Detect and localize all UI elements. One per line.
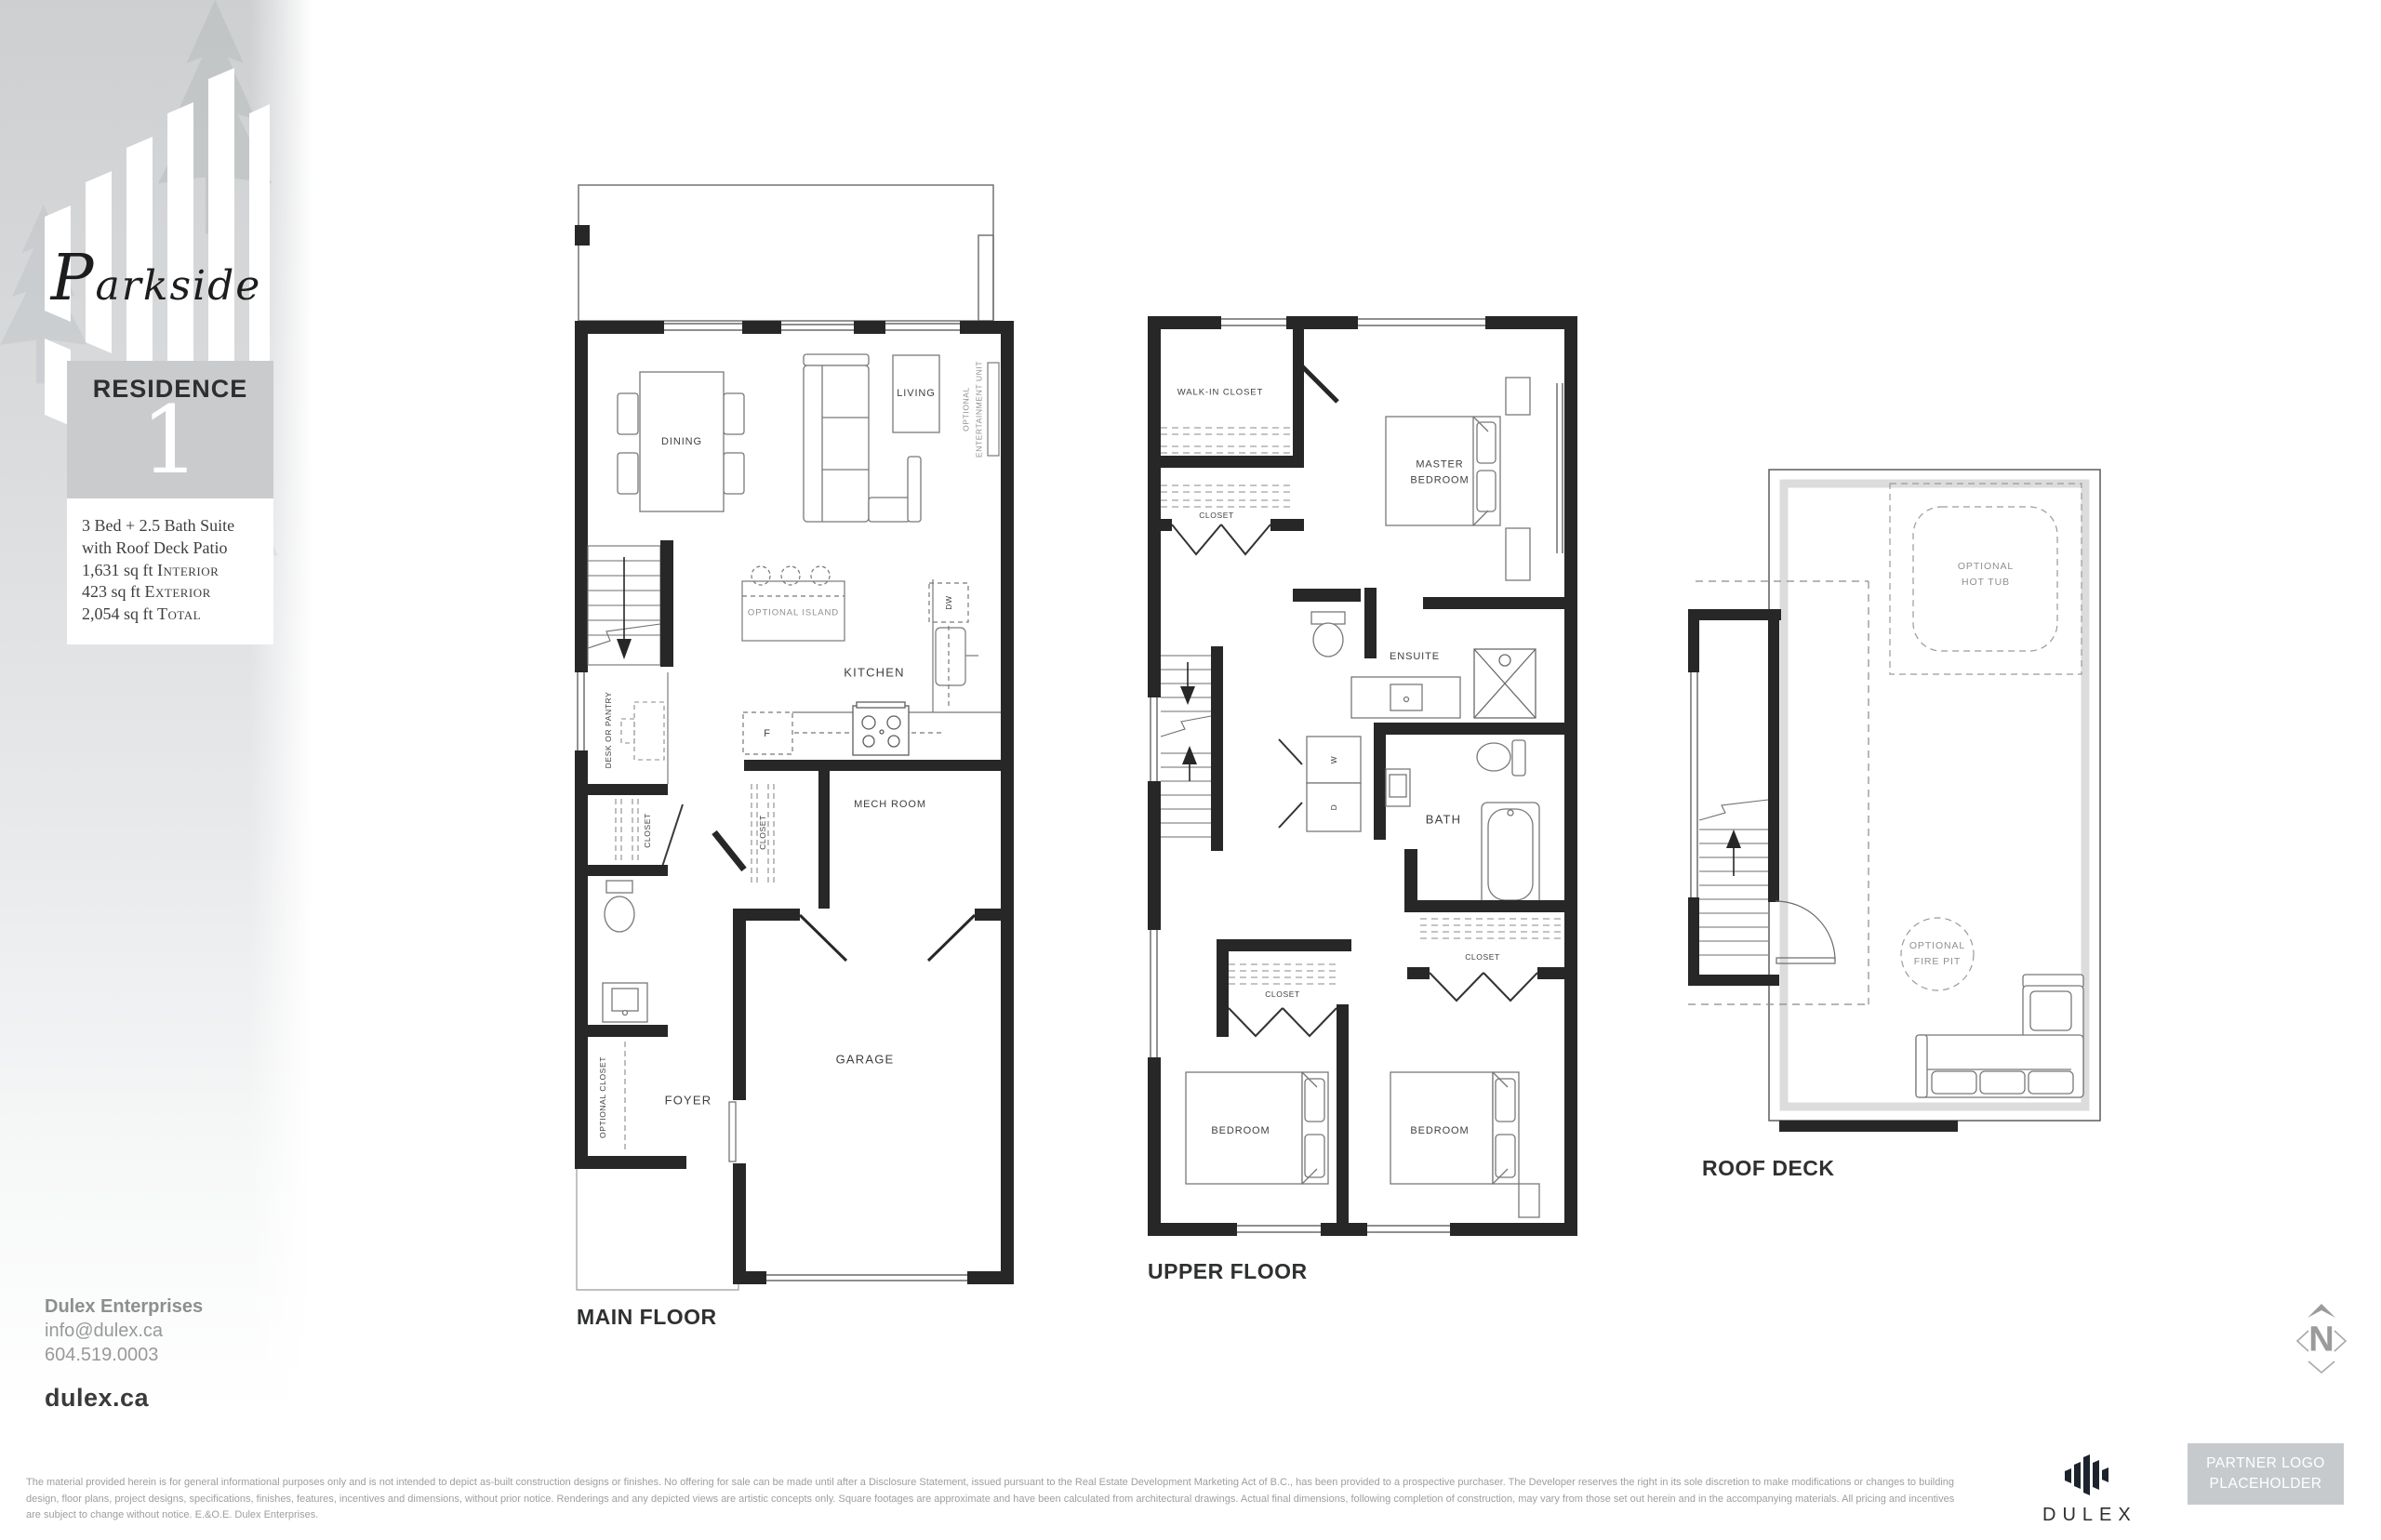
compass-north-label: N (2308, 1321, 2334, 1361)
room-label-bedroom-left: BEDROOM (1211, 1125, 1270, 1136)
label-closet-top: CLOSET (1199, 511, 1234, 520)
main-floor-drawing (575, 181, 1014, 1358)
main-floor-title: MAIN FLOOR (577, 1305, 717, 1330)
dulex-logo-mark (2063, 1447, 2115, 1503)
room-label-bath: BATH (1426, 813, 1462, 827)
label-optional-island: OPTIONAL ISLAND (748, 608, 839, 618)
label-closet-right: CLOSET (1465, 952, 1500, 962)
contact-block: Dulex Enterprises info@dulex.ca 604.519.… (45, 1294, 203, 1414)
label-optional-hot-tub: OPTIONALHOT TUB (1958, 559, 2014, 591)
label-optional-closet: OPTIONAL CLOSET (598, 1056, 607, 1138)
partner-placeholder-line: PARTNER LOGO (2188, 1454, 2344, 1474)
label-closet-mid: CLOSET (758, 815, 767, 850)
contact-company: Dulex Enterprises (45, 1294, 203, 1319)
area-exterior: 423 sq ft Exterior (82, 581, 259, 604)
roof-deck-title: ROOF DECK (1702, 1156, 1835, 1181)
spec-line-1: 3 Bed + 2.5 Bath Suite (82, 515, 259, 538)
room-label-bedroom-right: BEDROOM (1410, 1125, 1469, 1136)
label-desk-or-pantry: DESK OR PANTRY (604, 692, 613, 769)
label-fridge: F (764, 728, 771, 739)
label-optional-fire-pit: OPTIONALFIRE PIT (1909, 938, 1965, 970)
dulex-wordmark: DULEX (2042, 1505, 2135, 1526)
disclaimer-line: design, floor plans, project designs, sp… (26, 1492, 2165, 1508)
label-closet-hall: CLOSET (643, 813, 652, 848)
residence-number: 1 (67, 400, 273, 482)
room-label-master-bedroom: MASTERBEDROOM (1410, 458, 1469, 488)
main-floor-plan: DINING LIVING OPTIONALENTERTAINMENT UNIT… (575, 181, 1014, 1358)
room-label-mech: MECH ROOM (854, 799, 926, 810)
area-interior: 1,631 sq ft Interior (82, 560, 259, 582)
label-closet-left: CLOSET (1265, 989, 1300, 999)
spec-line-2: with Roof Deck Patio (82, 538, 259, 560)
room-label-living: LIVING (897, 388, 935, 399)
room-label-dining: DINING (661, 436, 702, 447)
residence-box: RESIDENCE 1 (67, 361, 273, 498)
roof-deck-plan: OPTIONALHOT TUB OPTIONALFIRE PIT ROOF DE… (1688, 465, 2102, 1200)
dulex-logo: DULEX (2042, 1447, 2135, 1526)
upper-floor-title: UPPER FLOOR (1148, 1259, 1308, 1284)
disclaimer-line: are subject to change without notice. E.… (26, 1507, 2165, 1524)
room-label-kitchen: KITCHEN (844, 666, 904, 680)
room-label-walk-in-closet: WALK-IN CLOSET (1177, 388, 1263, 398)
contact-phone[interactable]: 604.519.0003 (45, 1343, 203, 1367)
contact-email[interactable]: info@dulex.ca (45, 1319, 203, 1343)
brand-panel: Parkside RESIDENCE 1 3 Bed + 2.5 Bath Su… (0, 0, 313, 1540)
partner-placeholder-line: PLACEHOLDER (2188, 1474, 2344, 1494)
compass: N (2279, 1298, 2364, 1384)
contact-website[interactable]: dulex.ca (45, 1382, 203, 1414)
disclaimer-line: The material provided herein is for gene… (26, 1475, 2165, 1492)
room-label-foyer: FOYER (665, 1094, 712, 1108)
label-dishwasher: DW (944, 595, 953, 609)
spec-box: 3 Bed + 2.5 Bath Suite with Roof Deck Pa… (67, 498, 273, 644)
upper-floor-plan: WALK-IN CLOSET CLOSET MASTERBEDROOM ENSU… (1148, 316, 1577, 1311)
area-total: 2,054 sq ft Total (82, 604, 259, 626)
label-optional-entertainment-unit: OPTIONALENTERTAINMENT UNIT (960, 361, 987, 458)
upper-floor-drawing (1148, 316, 1577, 1237)
floorplan-brochure: Parkside RESIDENCE 1 3 Bed + 2.5 Bath Su… (0, 0, 2381, 1540)
label-dryer: D (1329, 804, 1338, 811)
legal-disclaimer: The material provided herein is for gene… (26, 1475, 2165, 1524)
project-wordmark: Parkside (17, 242, 296, 315)
partner-logo-placeholder: PARTNER LOGO PLACEHOLDER (2188, 1443, 2344, 1505)
room-label-garage: GARAGE (836, 1053, 895, 1067)
label-washer: W (1329, 756, 1338, 764)
roof-deck-drawing (1688, 465, 2102, 1144)
room-label-ensuite: ENSUITE (1390, 651, 1440, 662)
